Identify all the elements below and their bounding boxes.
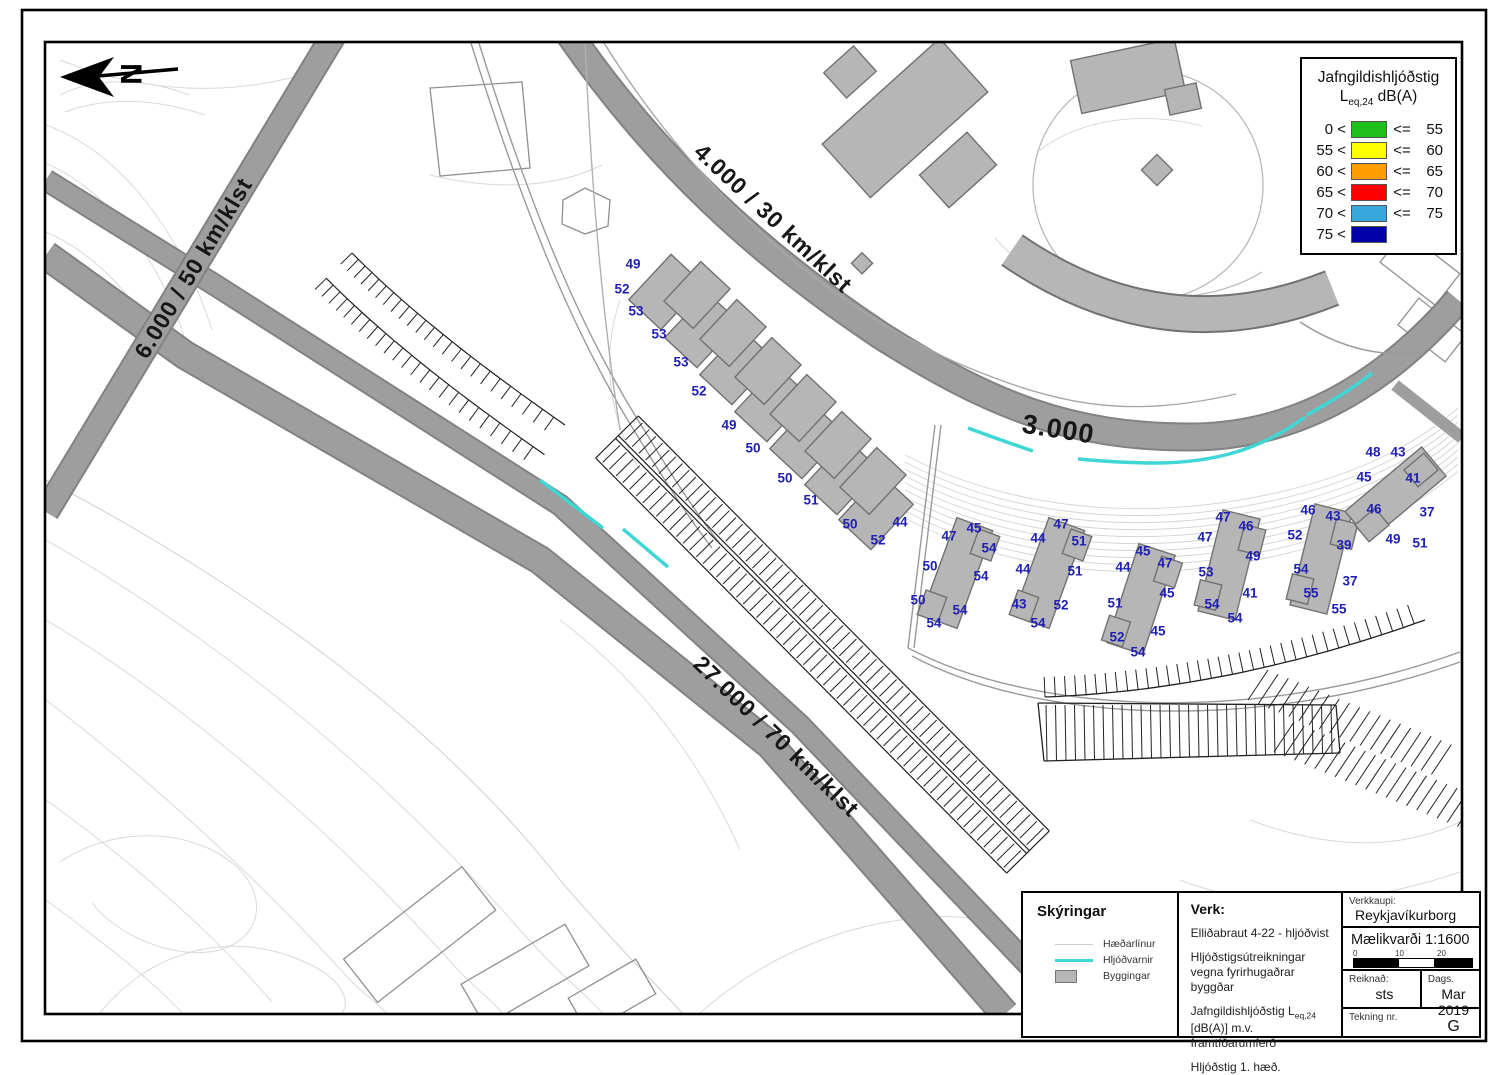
noise-value: 45 xyxy=(1356,470,1372,485)
barrier-symbol xyxy=(1055,959,1093,962)
noise-value: 47 xyxy=(1215,510,1230,525)
project-floor: Hljóðstig 1. hæð. xyxy=(1191,1060,1331,1075)
road-label: 27.000 / 70 km/klst xyxy=(688,651,864,822)
legend-row-3: 65 <<=70 xyxy=(1308,183,1455,202)
noise-value: 52 xyxy=(1109,630,1124,645)
noise-value: 52 xyxy=(614,282,629,297)
noise-value: 53 xyxy=(651,327,667,342)
noise-value: 48 xyxy=(1365,445,1381,460)
noise-value: 45 xyxy=(1159,586,1175,601)
noise-value: 43 xyxy=(1390,445,1406,460)
title-block: Skýringar HæðarlínurHljóðvarnirByggingar… xyxy=(1021,891,1481,1038)
drawing-number-value: G xyxy=(1447,1018,1459,1036)
calculated-by-value: sts xyxy=(1355,986,1414,1002)
noise-value: 44 xyxy=(1115,560,1131,575)
noise-value: 45 xyxy=(1150,624,1166,639)
calculated-by-label: Reiknað: xyxy=(1349,974,1414,985)
drawing-number-label: Tekning nr. xyxy=(1349,1012,1397,1023)
noise-value: 54 xyxy=(973,569,989,584)
noise-value: 51 xyxy=(803,493,819,508)
scale-bar xyxy=(1353,958,1473,968)
skyringar-items: HæðarlínurHljóðvarnirByggingar xyxy=(1037,936,1169,984)
road-label: 6.000 / 50 km/klst xyxy=(129,173,257,363)
noise-value: 44 xyxy=(892,515,908,530)
noise-value: 54 xyxy=(952,603,968,618)
noise-value: 50 xyxy=(922,559,937,574)
legend-title: Jafngildishljóðstig Leq,24 dB(A) xyxy=(1302,68,1455,110)
scale-label: Mælikvarði 1:1600 xyxy=(1351,932,1473,948)
noise-value: 54 xyxy=(1293,562,1309,577)
scale-cell: Mælikvarði 1:1600 01020 xyxy=(1343,928,1479,971)
building-symbol xyxy=(1055,970,1077,983)
north-letter: N xyxy=(114,63,147,85)
north-arrow: N xyxy=(60,57,178,97)
noise-value: 50 xyxy=(910,593,925,608)
title-block-right: Verkkaupi: Reykjavíkurborg Mælikvarði 1:… xyxy=(1343,893,1479,1036)
calculated-by-cell: Reiknað: sts xyxy=(1343,971,1422,1007)
contour-symbol xyxy=(1055,944,1093,945)
legend-row-0: 0 <<=55 xyxy=(1308,120,1455,139)
noise-value: 49 xyxy=(625,257,640,272)
noise-value: 39 xyxy=(1336,538,1351,553)
noise-value: 52 xyxy=(691,384,706,399)
noise-value: 50 xyxy=(842,517,857,532)
noise-value: 37 xyxy=(1419,505,1434,520)
legend-row-1: 55 <<=60 xyxy=(1308,141,1455,160)
noise-value: 52 xyxy=(870,533,885,548)
road-labels: 6.000 / 50 km/klst4.000 / 30 km/klst3.00… xyxy=(129,138,1097,822)
legend-swatch xyxy=(1351,205,1387,222)
legend-explanations: Skýringar HæðarlínurHljóðvarnirByggingar xyxy=(1023,893,1179,1036)
noise-value: 50 xyxy=(777,471,792,486)
noise-value: 46 xyxy=(1366,502,1382,517)
drawing-number-cell: Tekning nr. G xyxy=(1343,1009,1479,1039)
legend-swatch xyxy=(1351,226,1387,243)
client-value: Reykjavíkurborg xyxy=(1355,907,1473,923)
noise-value: 53 xyxy=(1198,565,1214,580)
noise-value: 55 xyxy=(1303,586,1319,601)
legend-swatch xyxy=(1351,163,1387,180)
noise-value: 54 xyxy=(926,616,942,631)
noise-value: 54 xyxy=(1030,616,1046,631)
legend-swatch xyxy=(1351,142,1387,159)
noise-value: 54 xyxy=(981,541,997,556)
noise-value: 43 xyxy=(1325,509,1341,524)
noise-value: 54 xyxy=(1204,597,1220,612)
noise-value: 45 xyxy=(966,521,982,536)
legend-row-2: 60 <<=65 xyxy=(1308,162,1455,181)
noise-value: 51 xyxy=(1067,564,1083,579)
noise-value: 49 xyxy=(1245,549,1260,564)
noise-value: 52 xyxy=(1053,598,1068,613)
noise-value: 47 xyxy=(1197,530,1212,545)
noise-value: 47 xyxy=(1157,556,1172,571)
legend-swatch xyxy=(1351,184,1387,201)
noise-value: 50 xyxy=(745,441,760,456)
date-label: Dags. xyxy=(1428,974,1473,985)
noise-value: 44 xyxy=(1015,562,1031,577)
noise-value: 49 xyxy=(721,418,736,433)
noise-value: 51 xyxy=(1071,534,1087,549)
noise-value: 53 xyxy=(673,355,689,370)
project-info: Verk: Elliðabraut 4-22 - hljóðvist Hljóð… xyxy=(1179,893,1343,1036)
legend-row-4: 70 <<=75 xyxy=(1308,204,1455,223)
project-metric: Jafngildishljóðstig Leq,24 [dB(A)] m.v. … xyxy=(1191,1004,1331,1051)
noise-value: 41 xyxy=(1242,586,1258,601)
noise-value: 54 xyxy=(1130,645,1146,660)
project-title: Elliðabraut 4-22 - hljóðvist xyxy=(1191,926,1331,941)
noise-map-sheet: { "north": {"letter": "N"}, "legend": { … xyxy=(0,0,1500,1061)
skyringar-item-building: Byggingar xyxy=(1055,968,1169,984)
verk-label: Verk: xyxy=(1191,901,1331,917)
noise-value: 46 xyxy=(1238,519,1254,534)
noise-value: 46 xyxy=(1300,503,1316,518)
noise-value: 53 xyxy=(628,304,644,319)
legend-row-5: 75 < xyxy=(1308,225,1455,244)
noise-value: 52 xyxy=(1287,528,1302,543)
calc-date-row: Reiknað: sts Dags. Mar 2019 xyxy=(1343,971,1479,1009)
noise-value: 47 xyxy=(1053,517,1068,532)
noise-value: 43 xyxy=(1011,597,1027,612)
client-label: Verkkaupi: xyxy=(1349,896,1473,907)
noise-value: 44 xyxy=(1030,531,1046,546)
noise-value: 54 xyxy=(1227,611,1243,626)
date-cell: Dags. Mar 2019 xyxy=(1422,971,1479,1007)
noise-value: 51 xyxy=(1412,536,1428,551)
noise-value: 49 xyxy=(1385,532,1400,547)
skyringar-item-contour: Hæðarlínur xyxy=(1055,936,1169,952)
legend-box: Jafngildishljóðstig Leq,24 dB(A) 0 <<=55… xyxy=(1300,57,1457,255)
noise-value: 41 xyxy=(1405,471,1421,486)
client-cell: Verkkaupi: Reykjavíkurborg xyxy=(1343,893,1479,928)
scale-ticks: 01020 xyxy=(1353,949,1465,958)
noise-value: 37 xyxy=(1342,574,1357,589)
noise-value: 51 xyxy=(1107,596,1123,611)
noise-value: 47 xyxy=(941,529,956,544)
noise-value: 55 xyxy=(1331,602,1347,617)
skyringar-item-barrier: Hljóðvarnir xyxy=(1055,952,1169,968)
noise-value: 45 xyxy=(1135,544,1151,559)
project-desc: Hljóðstigsútreikningar vegna fyrirhugaðr… xyxy=(1191,950,1331,995)
skyringar-title: Skýringar xyxy=(1037,903,1169,920)
legend-rows: 0 <<=5555 <<=6060 <<=6565 <<=7070 <<=757… xyxy=(1302,120,1455,244)
legend-swatch xyxy=(1351,121,1387,138)
